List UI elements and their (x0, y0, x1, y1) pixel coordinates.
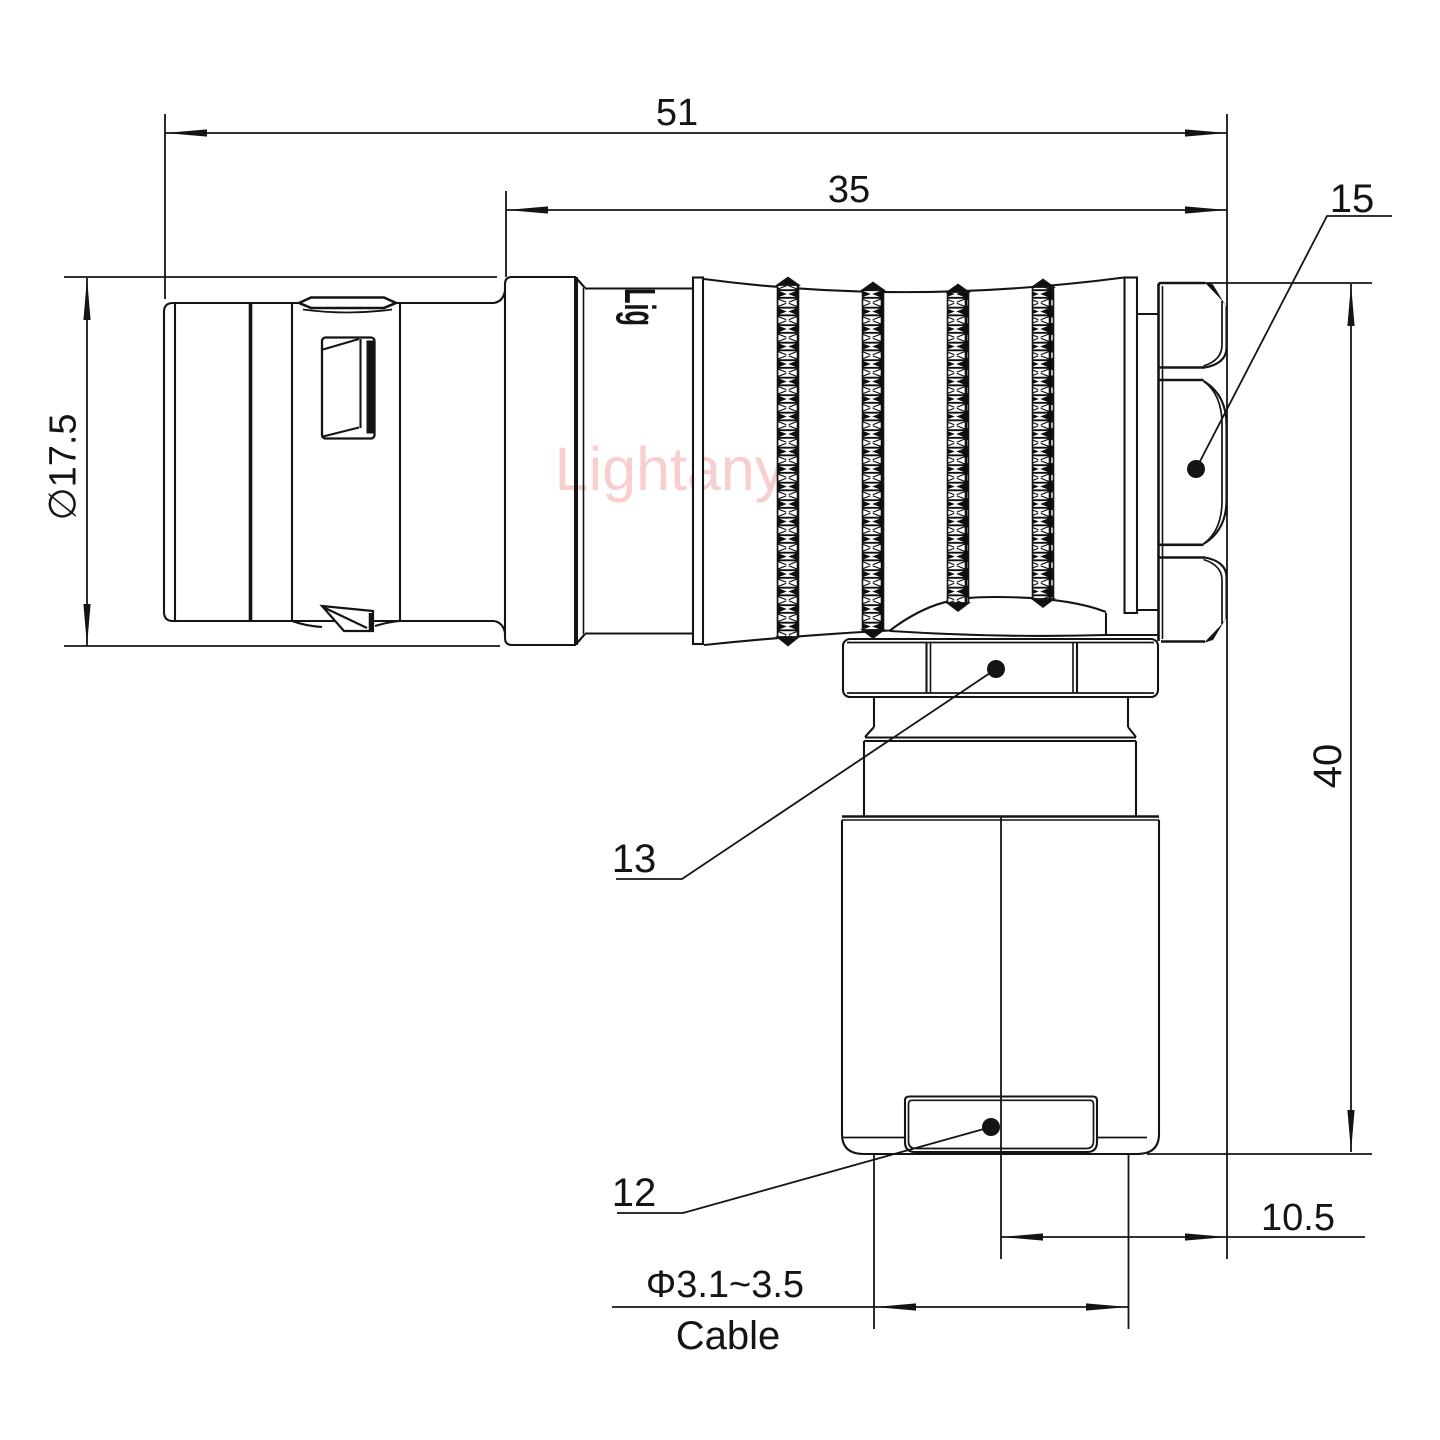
svg-text:Lightany: Lightany (555, 435, 786, 503)
svg-text:Lig: Lig (615, 288, 664, 326)
svg-text:10.5: 10.5 (1261, 1197, 1335, 1239)
svg-text:15: 15 (1330, 177, 1375, 221)
svg-text:35: 35 (828, 169, 870, 211)
svg-text:13: 13 (612, 837, 657, 881)
svg-text:∅17.5: ∅17.5 (43, 413, 85, 520)
svg-text:Φ3.1~3.5: Φ3.1~3.5 (646, 1264, 804, 1306)
svg-text:12: 12 (612, 1171, 657, 1215)
svg-text:40: 40 (1306, 744, 1350, 789)
svg-text:Cable: Cable (676, 1314, 781, 1358)
svg-text:51: 51 (656, 92, 698, 134)
